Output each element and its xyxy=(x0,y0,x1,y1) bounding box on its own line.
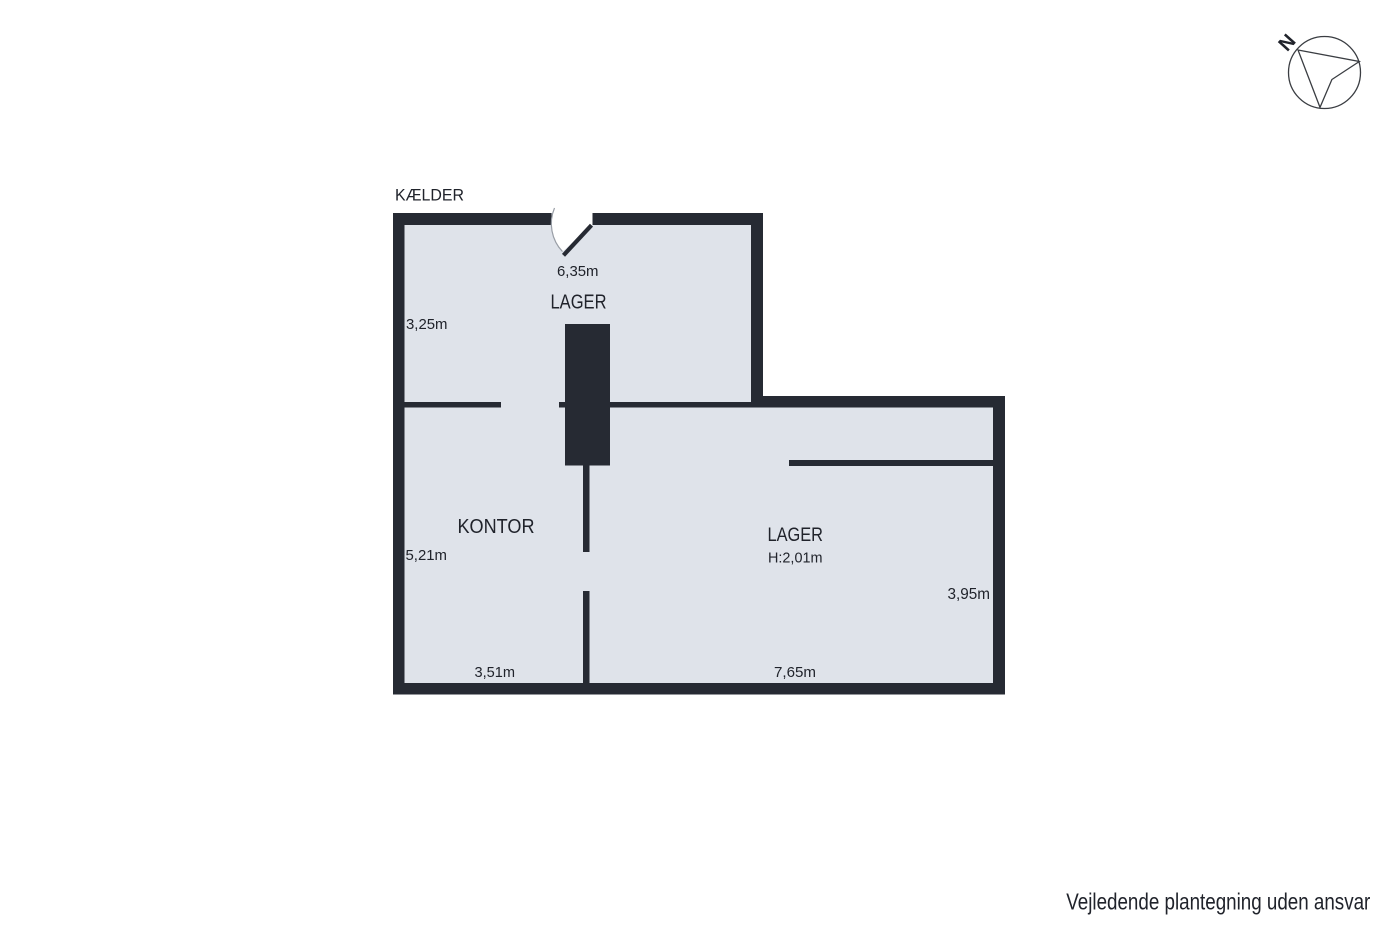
svg-text:H:2,01m: H:2,01m xyxy=(768,551,823,567)
svg-text:Vejledende plantegning uden an: Vejledende plantegning uden ansvar xyxy=(1066,889,1370,915)
svg-text:7,65m: 7,65m xyxy=(774,664,816,681)
svg-text:5,21m: 5,21m xyxy=(406,547,448,564)
svg-text:LAGER: LAGER xyxy=(551,292,607,314)
svg-text:KONTOR: KONTOR xyxy=(458,516,535,538)
svg-text:KÆLDER: KÆLDER xyxy=(395,187,464,205)
svg-text:3,25m: 3,25m xyxy=(406,316,448,333)
svg-text:N: N xyxy=(1275,30,1301,55)
svg-text:LAGER: LAGER xyxy=(768,524,824,546)
svg-text:6,35m: 6,35m xyxy=(557,263,599,280)
svg-text:3,51m: 3,51m xyxy=(475,664,516,681)
svg-text:3,95m: 3,95m xyxy=(948,586,991,603)
